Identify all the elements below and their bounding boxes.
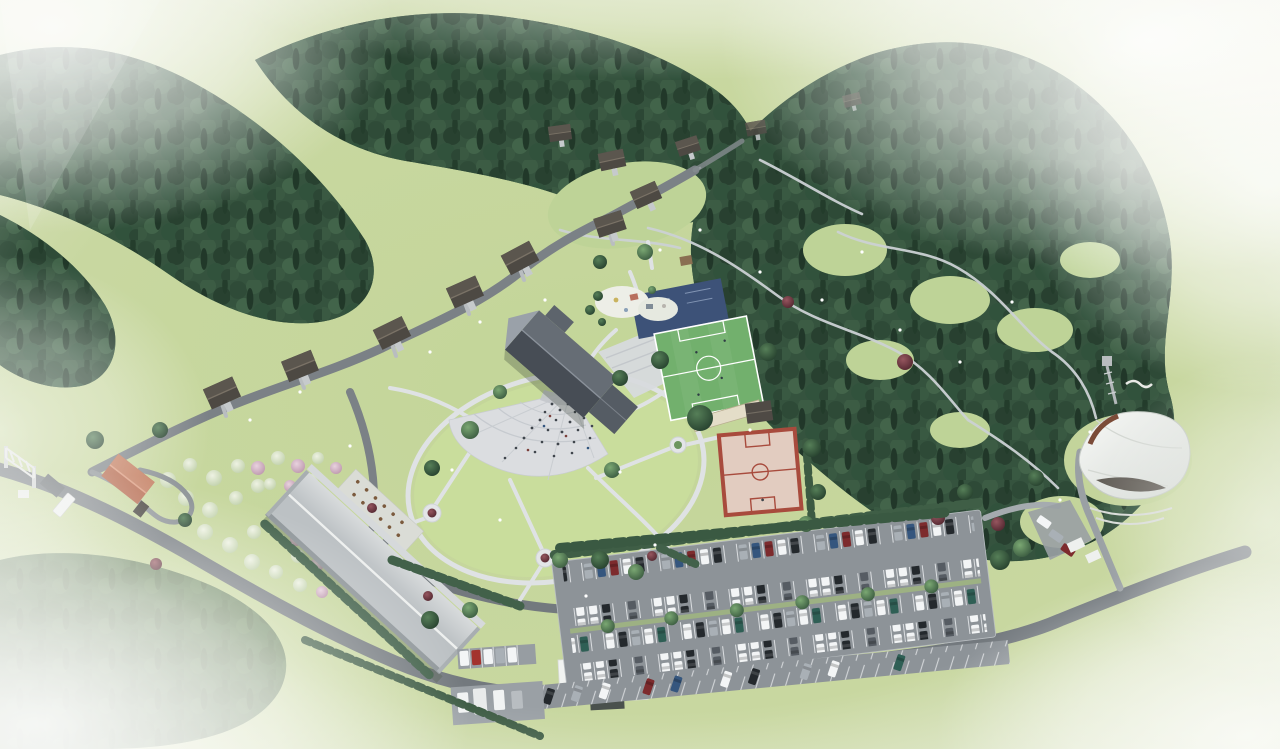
mist-haze: [0, 0, 1280, 749]
aerial-render-stage: Forest resort master plan — aerial rende…: [0, 0, 1280, 749]
aerial-masterplan-render: Forest resort master plan — aerial rende…: [0, 0, 1280, 749]
